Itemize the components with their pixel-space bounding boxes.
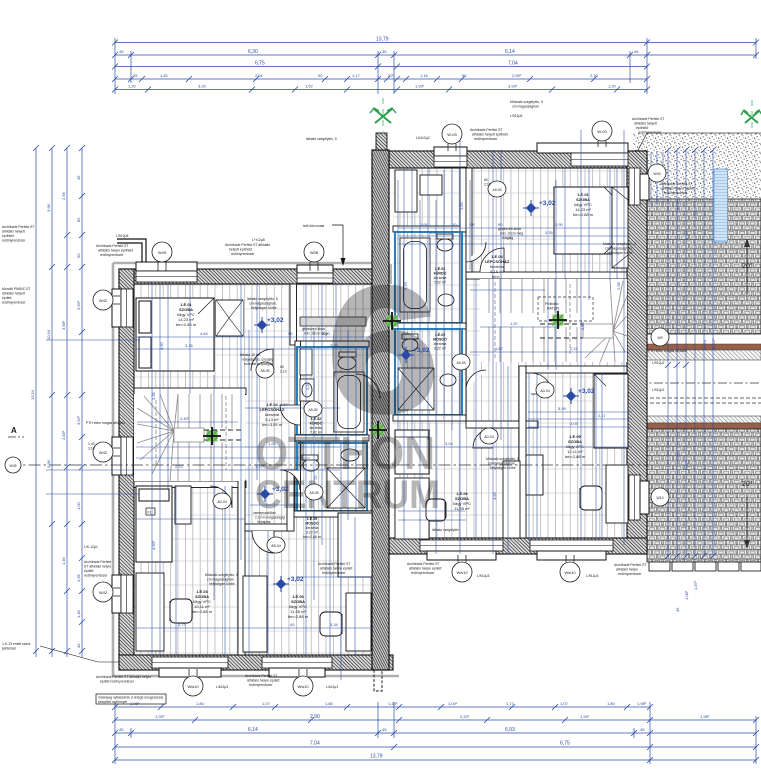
- svg-text:magáig: magáig: [502, 236, 513, 240]
- svg-text:Műszaki szegélyléc, 5: Műszaki szegélyléc, 5: [510, 100, 543, 104]
- svg-text:3,22 m²: 3,22 m²: [306, 531, 319, 535]
- svg-text:Ww10: Ww10: [456, 570, 468, 575]
- svg-text:90: 90: [462, 73, 467, 78]
- svg-text:2,33: 2,33: [403, 281, 408, 290]
- svg-text:bm=2,88 m: bm=2,88 m: [573, 212, 594, 217]
- svg-text:áthidaló helyre épített: áthidaló helyre épített: [409, 567, 441, 571]
- svg-text:2,20º: 2,20º: [460, 714, 470, 719]
- svg-text:2,90: 2,90: [555, 222, 564, 227]
- svg-text:4,54º: 4,54º: [675, 200, 680, 210]
- svg-text:cm magasságban,: cm magasságban,: [249, 302, 277, 306]
- svg-text:épített: épített: [84, 569, 93, 573]
- svg-text:1,98º: 1,98º: [700, 714, 710, 719]
- svg-text:3,98: 3,98: [46, 203, 51, 212]
- svg-text:2,12: 2,12: [570, 346, 579, 351]
- svg-text:redőnyrendszer: redőnyrendszer: [411, 571, 435, 575]
- svg-text:helyiségen körbe: helyiségen körbe: [607, 251, 633, 255]
- svg-text:gépészeti akna: gépészeti akna: [498, 227, 521, 231]
- svg-text:W9: W9: [657, 336, 662, 340]
- svg-text:3,03: 3,03: [570, 421, 579, 426]
- svg-text:cm magasságban,: cm magasságban,: [488, 462, 516, 466]
- svg-text:2,17: 2,17: [598, 413, 607, 418]
- svg-text:1,82: 1,82: [160, 73, 169, 78]
- svg-text:ST áthidaló helyre: ST áthidaló helyre: [84, 565, 111, 569]
- svg-text:OTTHON: OTTHON: [255, 427, 435, 479]
- svg-text:redőnyrendszer: redőnyrendszer: [474, 137, 498, 141]
- svg-text:50: 50: [76, 253, 81, 258]
- svg-text:bm=↑: bm=↑: [492, 274, 502, 279]
- svg-text:13,79: 13,79: [376, 37, 389, 43]
- svg-text:beépített redőnnyel: beépített redőnnyel: [98, 700, 127, 704]
- svg-text:6,75: 6,75: [255, 61, 265, 67]
- svg-text:1,46: 1,46: [61, 556, 66, 565]
- svg-text:AD-04: AD-04: [540, 389, 550, 393]
- svg-text:2,50: 2,50: [580, 321, 585, 330]
- svg-text:áthidaló helyett építhető: áthidaló helyett építhető: [472, 133, 508, 137]
- svg-text:2,10: 2,10: [280, 370, 287, 374]
- svg-text:1,91: 1,91: [420, 222, 429, 227]
- svg-text:áthidaló helyre épített: áthidaló helyre épített: [247, 679, 279, 683]
- svg-text:45: 45: [76, 175, 81, 180]
- svg-text:2,55º: 2,55º: [512, 73, 522, 78]
- svg-text:L/912μ2: L/912μ2: [652, 361, 664, 365]
- svg-text:1,16: 1,16: [420, 73, 429, 78]
- svg-text:cm magasságban,: cm magasságban,: [605, 247, 633, 251]
- svg-text:Massziv szegélyléc, 5: Massziv szegélyléc, 5: [603, 242, 636, 246]
- svg-text:1,17: 1,17: [352, 73, 361, 78]
- svg-text:3,69º: 3,69º: [76, 300, 81, 310]
- svg-text:áthidaló helyre épített: áthidaló helyre épített: [320, 567, 352, 571]
- svg-text:L/912μ8: L/912μ8: [116, 234, 128, 238]
- svg-text:3,04: 3,04: [445, 441, 454, 446]
- svg-text:Architrade Perfekt ST: Architrade Perfekt ST: [245, 674, 277, 678]
- svg-text:helyett építhető: helyett építhető: [229, 248, 252, 252]
- svg-text:L/912μ3: L/912μ3: [586, 574, 598, 578]
- svg-text:helyiségen körbe: helyiségen körbe: [209, 582, 235, 586]
- svg-text:redőnyrendszer: redőnyrendszer: [100, 253, 124, 257]
- svg-text:L/k12μ3: L/k12μ3: [216, 685, 228, 689]
- svg-text:1,20: 1,20: [128, 84, 137, 89]
- svg-text:áthidaló helyett: áthidaló helyett: [2, 292, 25, 296]
- svg-text:FÜRDŐ: FÜRDŐ: [310, 421, 323, 426]
- svg-text:10,64: 10,64: [702, 339, 707, 350]
- svg-text:Műszaki szegélyléc, 5: Műszaki szegélyléc, 5: [205, 573, 238, 577]
- svg-text:2,58: 2,58: [616, 281, 621, 290]
- svg-text:L/K-12μ1: L/K-12μ1: [84, 545, 98, 549]
- svg-text:W49: W49: [158, 250, 167, 255]
- svg-text:A5-05: A5-05: [456, 361, 465, 365]
- svg-text:90: 90: [318, 73, 323, 78]
- svg-text:Architrade Perfekt ST áthidaló: Architrade Perfekt ST áthidaló: [225, 243, 270, 247]
- svg-text:L/k12μ3: L/k12μ3: [326, 685, 338, 689]
- svg-text:látható szegélyléc: látható szegélyléc: [432, 528, 459, 532]
- svg-text:2,02: 2,02: [430, 230, 439, 235]
- svg-text:cm magasságban: cm magasságban: [512, 105, 539, 109]
- svg-text:látható szegélyléc, 5: látható szegélyléc, 5: [247, 297, 278, 301]
- svg-text:20°: 20°: [742, 480, 753, 488]
- svg-text:13,79: 13,79: [370, 754, 383, 760]
- svg-text:Architrade Perfekt ST: Architrade Perfekt ST: [470, 128, 502, 132]
- svg-text:CENTRUM: CENTRUM: [255, 473, 440, 517]
- svg-text:7,04: 7,04: [310, 741, 320, 747]
- svg-text:Ww10: Ww10: [187, 684, 199, 689]
- svg-text:45: 45: [119, 49, 124, 54]
- svg-text:helyiségen körbe: helyiségen körbe: [490, 466, 516, 470]
- svg-text:W42: W42: [99, 298, 108, 303]
- svg-text:1,80: 1,80: [325, 701, 334, 706]
- svg-text:11,55 m²: 11,55 m²: [454, 506, 470, 511]
- svg-text:Architrade Perfekt ST: Architrade Perfekt ST: [614, 563, 646, 567]
- svg-text:5,59: 5,59: [558, 406, 567, 411]
- svg-text:áthidaló helyre építhető: áthidaló helyre építhető: [98, 249, 133, 253]
- svg-text:W45: W45: [10, 464, 17, 468]
- svg-text:3,93: 3,93: [198, 84, 207, 89]
- svg-text:A: A: [11, 426, 17, 435]
- svg-text:2,40º: 2,40º: [180, 416, 190, 421]
- svg-text:1,87º: 1,87º: [255, 464, 265, 469]
- svg-text:LK412μ2: LK412μ2: [416, 136, 430, 140]
- svg-text:A5-05: A5-05: [308, 408, 317, 412]
- svg-text:Pinlinálló: Pinlinálló: [545, 302, 559, 306]
- svg-text:1,20: 1,20: [608, 84, 617, 89]
- svg-text:2,83º: 2,83º: [61, 430, 66, 440]
- svg-text:1,93º: 1,93º: [415, 84, 425, 89]
- svg-text:1,04º: 1,04º: [448, 701, 458, 706]
- svg-text:Architrade Perfekt ST: Architrade Perfekt ST: [2, 225, 34, 229]
- svg-text:6,75: 6,75: [560, 741, 570, 747]
- svg-text:W08: W08: [310, 250, 319, 255]
- svg-text:Monolit PM84C ST: Monolit PM84C ST: [2, 287, 30, 291]
- svg-text:műanyag nyilászárók 3-rétegű ü: műanyag nyilászárók 3-rétegű üvegezéssel: [98, 696, 163, 700]
- svg-text:1,46: 1,46: [76, 609, 81, 618]
- svg-text:W-09: W-09: [447, 132, 457, 137]
- svg-text:Műszaki szegélyléc, 5: Műszaki szegélyléc, 5: [486, 457, 519, 461]
- svg-text:W-09: W-09: [597, 129, 607, 134]
- svg-text:85: 85: [76, 217, 81, 222]
- svg-text:W10: W10: [657, 496, 664, 500]
- svg-text:10: 10: [452, 222, 457, 227]
- svg-text:45: 45: [693, 210, 698, 215]
- svg-text:látható szegélyléc, 5: látható szegélyléc, 5: [306, 137, 337, 141]
- svg-text:kerámia: kerámia: [306, 526, 319, 530]
- svg-text:+3,02: +3,02: [272, 486, 289, 493]
- svg-text:70: 70: [313, 475, 318, 480]
- svg-text:5,87: 5,87: [675, 451, 680, 460]
- svg-text:min. 10cm még: min. 10cm még: [500, 232, 523, 236]
- svg-text:3,34: 3,34: [330, 622, 339, 627]
- svg-text:áthidaló helyre: áthidaló helyre: [616, 568, 638, 572]
- svg-text:60: 60: [280, 365, 284, 369]
- svg-text:Architrade Perfekt ST: Architrade Perfekt ST: [96, 244, 128, 248]
- svg-text:redőnyrendszer: redőnyrendszer: [664, 191, 688, 195]
- svg-text:L/912μ5: L/912μ5: [510, 114, 522, 118]
- svg-text:3,52º: 3,52º: [76, 415, 81, 425]
- svg-text:épített: épített: [2, 296, 11, 300]
- svg-text:1,40: 1,40: [88, 442, 95, 446]
- svg-text:2,61: 2,61: [255, 73, 264, 78]
- svg-text:45: 45: [119, 727, 124, 732]
- svg-text:1,00: 1,00: [76, 501, 81, 510]
- svg-text:PTH elem magas áthidaló: PTH elem magas áthidaló: [648, 349, 687, 353]
- svg-text:magasságú, szegély: magasságú, szegély: [242, 358, 273, 362]
- svg-text:A5-05: A5-05: [309, 491, 318, 495]
- svg-text:látható 10 cm: látható 10 cm: [240, 353, 261, 357]
- svg-text:1,57: 1,57: [510, 321, 519, 326]
- svg-text:épített redőnyrendszer: épített redőnyrendszer: [100, 680, 135, 684]
- svg-text:Architrade Perfekt ST: Architrade Perfekt ST: [660, 182, 692, 186]
- svg-text:1,87: 1,87: [495, 346, 504, 351]
- svg-text:6,93: 6,93: [505, 727, 515, 733]
- svg-text:2,10 m magasságig: 2,10 m magasságig: [255, 516, 285, 520]
- svg-text:redőnyrendszer: redőnyrendszer: [84, 574, 108, 578]
- svg-text:4,50: 4,50: [159, 341, 164, 350]
- svg-text:Architrade Perfekt ST: Architrade Perfekt ST: [318, 562, 350, 566]
- svg-text:1,08º: 1,08º: [684, 590, 689, 600]
- svg-text:+3,02: +3,02: [287, 576, 304, 583]
- svg-text:45: 45: [634, 49, 639, 54]
- svg-text:redőnyrendszer: redőnyrendszer: [322, 571, 346, 575]
- svg-text:áthidaló helyre épített: áthidaló helyre épített: [662, 187, 694, 191]
- svg-text:1,95: 1,95: [76, 573, 81, 582]
- svg-text:2,72: 2,72: [175, 464, 184, 469]
- svg-text:1,98º: 1,98º: [637, 701, 647, 706]
- svg-text:redőnyrendszer: redőnyrendszer: [231, 252, 255, 256]
- svg-text:6,14: 6,14: [248, 727, 258, 733]
- svg-text:3,35: 3,35: [330, 343, 339, 348]
- svg-text:W42: W42: [99, 590, 108, 595]
- svg-text:2,35: 2,35: [151, 391, 156, 400]
- svg-text:Ww10: Ww10: [564, 570, 576, 575]
- svg-text:áthidaló helyett: áthidaló helyett: [2, 230, 25, 234]
- svg-text:40: 40: [290, 622, 295, 627]
- svg-text:bm=2,88 m: bm=2,88 m: [192, 609, 213, 614]
- svg-text:áthidaló helyett: áthidaló helyett: [634, 122, 657, 126]
- svg-text:1,94: 1,94: [268, 441, 277, 446]
- svg-text:bm=2,88 m: bm=2,88 m: [176, 322, 197, 327]
- svg-text:2,73: 2,73: [178, 622, 187, 627]
- svg-text:7,04: 7,04: [508, 61, 518, 67]
- svg-text:helyiségen körbe: helyiségen körbe: [251, 306, 277, 310]
- svg-text:jelöléssel: jelöléssel: [1, 647, 16, 651]
- svg-text:Architrade Perfekt ST: Architrade Perfekt ST: [632, 117, 664, 121]
- svg-text:4,64: 4,64: [200, 331, 209, 336]
- svg-text:AD-04: AD-04: [484, 435, 494, 439]
- svg-text:45: 45: [675, 607, 680, 612]
- svg-text:A5-05: A5-05: [260, 369, 269, 373]
- svg-text:NAT125: NAT125: [547, 307, 559, 311]
- svg-text:10,94: 10,94: [46, 329, 51, 340]
- svg-text:+3,02: +3,02: [578, 388, 595, 395]
- svg-text:3,10: 3,10: [88, 447, 95, 451]
- svg-text:4,55: 4,55: [492, 491, 497, 500]
- svg-text:redőnyrendszer: redőnyrendszer: [2, 239, 26, 243]
- svg-text:+3,02: +3,02: [413, 347, 430, 354]
- svg-text:A9-03: A9-03: [492, 188, 501, 192]
- svg-text:69: 69: [470, 222, 475, 227]
- svg-text:1,80: 1,80: [607, 701, 616, 706]
- svg-text:20°: 20°: [742, 262, 753, 270]
- svg-text:AD-04: AD-04: [217, 500, 227, 504]
- svg-text:burkolat helyiségen: burkolat helyiségen: [244, 362, 273, 366]
- svg-text:1,63: 1,63: [459, 201, 464, 210]
- svg-text:hőpajzsa: hőpajzsa: [257, 520, 271, 524]
- svg-text:L+r12μ8: L+r12μ8: [252, 238, 265, 242]
- svg-text:7,92º: 7,92º: [684, 460, 689, 470]
- svg-text:6,30: 6,30: [248, 49, 258, 55]
- svg-text:1,57: 1,57: [280, 402, 289, 407]
- svg-text:gépészeti akna: gépészeti akna: [302, 327, 325, 331]
- svg-text:45: 45: [382, 49, 387, 54]
- svg-text:bm=2,88 m: bm=2,88 m: [565, 454, 586, 459]
- svg-text:10,52º: 10,52º: [711, 338, 716, 350]
- svg-text:MOSDÓ: MOSDÓ: [305, 521, 319, 526]
- svg-text:3,35: 3,35: [545, 230, 554, 235]
- svg-text:AB-04: AB-04: [271, 544, 281, 548]
- svg-text:60: 60: [484, 178, 488, 182]
- svg-text:1,07: 1,07: [560, 701, 569, 706]
- svg-text:L/912μ3: L/912μ3: [477, 574, 489, 578]
- svg-text:építhető: építhető: [636, 126, 648, 130]
- svg-text:90: 90: [288, 331, 293, 336]
- svg-text:PTH elem magas áthidaló: PTH elem magas áthidaló: [86, 421, 125, 425]
- svg-text:1,30º: 1,30º: [388, 701, 398, 706]
- svg-text:1,62: 1,62: [305, 84, 314, 89]
- svg-text:1,93º: 1,93º: [155, 714, 165, 719]
- svg-text:45: 45: [382, 727, 387, 732]
- svg-text:W43: W43: [654, 172, 661, 176]
- svg-text:2,10: 2,10: [484, 183, 491, 187]
- svg-text:3,79º: 3,79º: [684, 230, 689, 240]
- svg-text:6,14: 6,14: [505, 49, 515, 55]
- svg-text:3,98: 3,98: [46, 459, 51, 468]
- svg-text:Ww10: Ww10: [297, 684, 309, 689]
- svg-text:Architrade Perfekt ST áthidaló: Architrade Perfekt ST áthidaló helyre: [96, 675, 151, 679]
- svg-text:4,50º: 4,50º: [151, 540, 156, 550]
- svg-text:1,80: 1,80: [196, 701, 205, 706]
- svg-text:3,93º: 3,93º: [508, 84, 518, 89]
- svg-text:1,94º: 1,94º: [580, 714, 590, 719]
- svg-text:3,68º: 3,68º: [61, 320, 66, 330]
- svg-text:bm=2,88 m: bm=2,88 m: [303, 535, 321, 539]
- svg-text:cserepszelőket: cserepszelőket: [253, 511, 276, 515]
- svg-text:1,07: 1,07: [262, 701, 271, 706]
- svg-text:cm magasságban: cm magasságban: [207, 578, 234, 582]
- svg-text:bm=2,88 m: bm=2,88 m: [288, 614, 309, 619]
- svg-text:3,35: 3,35: [185, 343, 194, 348]
- svg-text:2,66: 2,66: [61, 191, 66, 200]
- svg-text:1,06º: 1,06º: [130, 701, 140, 706]
- svg-text:Architrade Perfekt ST: Architrade Perfekt ST: [407, 562, 439, 566]
- svg-text:F1: F1: [148, 511, 152, 515]
- svg-text:25: 25: [133, 73, 138, 78]
- svg-text:min. 10cm még: min. 10cm még: [304, 332, 327, 336]
- svg-text:redőnyrendszer: redőnyrendszer: [2, 301, 26, 305]
- svg-text:redőnyrendszer: redőnyrendszer: [249, 683, 273, 687]
- svg-text:45: 45: [640, 727, 645, 732]
- svg-text:redőnyrendszer: redőnyrendszer: [638, 131, 662, 135]
- svg-text:13,54: 13,54: [30, 389, 35, 400]
- svg-text:+3,02: +3,02: [539, 200, 556, 207]
- svg-text:+3,02: +3,02: [267, 317, 284, 324]
- svg-text:2,33: 2,33: [305, 381, 310, 390]
- svg-text:W42: W42: [99, 450, 108, 455]
- svg-text:L/912μ2: L/912μ2: [652, 388, 664, 392]
- svg-text:tető körvonala: tető körvonala: [303, 224, 324, 228]
- svg-text:2,10: 2,10: [590, 73, 599, 78]
- svg-text:1,87º: 1,87º: [693, 580, 698, 590]
- svg-text:redőnyrendszer: redőnyrendszer: [618, 572, 642, 576]
- svg-text:építhető: építhető: [2, 234, 14, 238]
- svg-text:45: 45: [76, 643, 81, 648]
- svg-text:1.K-19 emelt szerk.: 1.K-19 emelt szerk.: [2, 642, 31, 646]
- svg-text:Architrade Perfekt: Architrade Perfekt: [84, 560, 111, 564]
